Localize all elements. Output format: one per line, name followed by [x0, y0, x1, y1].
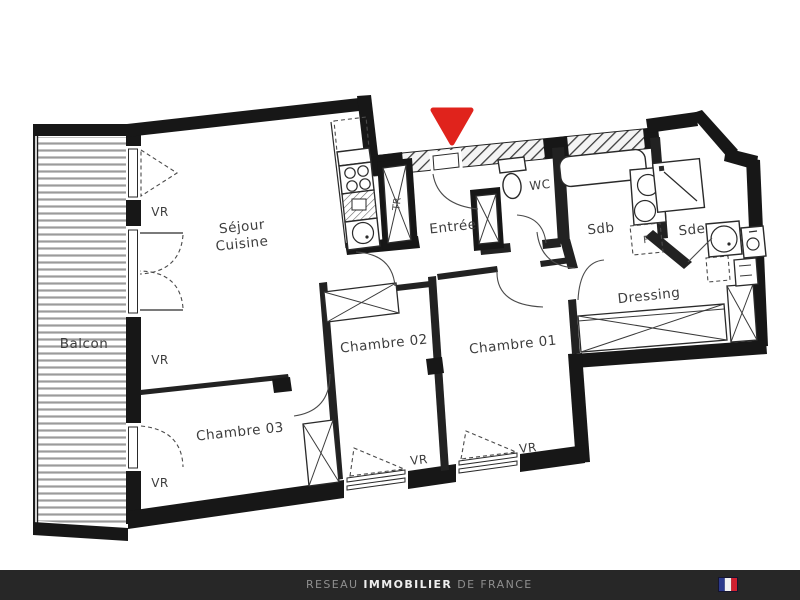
- vr-label-3: VR: [151, 476, 169, 490]
- vr-label-1: VR: [151, 205, 169, 219]
- room-label-chambre01: Chambre 01: [468, 332, 557, 357]
- room-label-entree: Entrée: [429, 217, 478, 238]
- room-label-balcon: Balcon: [60, 336, 109, 352]
- sde-top-wall: [646, 112, 698, 133]
- balcony: [33, 124, 128, 541]
- kitchen-sink-bowl: [352, 199, 366, 210]
- chambre03-door-swing: [294, 374, 330, 416]
- sejour-window-swing: [141, 150, 177, 196]
- room-label-wc: WC: [529, 177, 552, 193]
- toilet-tank: [498, 157, 526, 173]
- balcony-rail-inner: [37, 124, 38, 535]
- entrance-marker-arrow: [433, 110, 471, 143]
- wc-bottom-wall-b: [542, 238, 561, 249]
- vr-label-2: VR: [151, 353, 169, 367]
- wc-door-swing: [517, 215, 546, 243]
- sdb-hall-wall: [560, 239, 578, 269]
- footer-bar: RESEAU IMMOBILIER DE FRANCE: [0, 570, 800, 600]
- washing-machine-dot: [727, 242, 730, 245]
- flag-red-stripe: [731, 578, 737, 592]
- toilet-bowl: [502, 173, 523, 200]
- brand-text: RESEAU IMMOBILIER DE FRANCE: [306, 578, 533, 591]
- tr-label: TR: [391, 197, 403, 212]
- chambre01-wall-nub: [426, 357, 444, 375]
- room-label-dressing: Dressing: [617, 285, 681, 307]
- brand-part2: IMMOBILIER: [363, 578, 452, 591]
- balcony-top-wall: [33, 124, 128, 136]
- chambre03-window-swing: [141, 426, 183, 467]
- flag-blue-stripe: [719, 578, 725, 592]
- room-label-sde: Sde: [678, 221, 706, 240]
- brand-part3: DE FRANCE: [452, 578, 532, 591]
- chambre02-door-swing: [356, 252, 395, 286]
- chambre03-wall-nub: [272, 377, 292, 393]
- room-label-chambre02: Chambre 02: [339, 331, 428, 356]
- dishwasher-dot: [365, 235, 368, 238]
- balcony-decking: [38, 137, 126, 527]
- chambre03-top-wall: [140, 374, 289, 395]
- vr-label-5: VR: [519, 440, 538, 456]
- dressing-small-unit: [734, 258, 758, 286]
- shower-drain: [659, 166, 664, 171]
- room-label-sdb: Sdb: [587, 220, 616, 239]
- floor-plan: Balcon Séjour Cuisine Entrée WC Sdb Sde …: [0, 0, 800, 570]
- french-door-arc-bottom: [140, 271, 183, 308]
- hand-basin-box: [741, 226, 766, 258]
- french-door-frame: [129, 230, 138, 313]
- french-door-arc-top: [140, 235, 183, 274]
- dressing-door-swing: [578, 260, 604, 300]
- chambre03-window-frame: [129, 427, 138, 468]
- dressing-left-wall: [568, 299, 580, 354]
- chambre01-door-swing: [497, 271, 543, 307]
- vr-label-4: VR: [410, 452, 429, 468]
- floorplan-page: Balcon Séjour Cuisine Entrée WC Sdb Sde …: [0, 0, 800, 600]
- room-label-chambre03: Chambre 03: [195, 419, 284, 444]
- balcony-rail-outer: [33, 124, 35, 535]
- brand-part1: RESEAU: [306, 578, 363, 591]
- chambre02-top-wall: [396, 281, 431, 291]
- france-flag-icon: [718, 577, 738, 592]
- dressing-small-unit-dashed: [706, 256, 730, 282]
- entrance-door-panel: [433, 153, 459, 170]
- sejour-window-frame: [129, 149, 138, 197]
- chambre01-top-wall-a: [437, 266, 498, 280]
- flag-white-stripe: [725, 578, 731, 592]
